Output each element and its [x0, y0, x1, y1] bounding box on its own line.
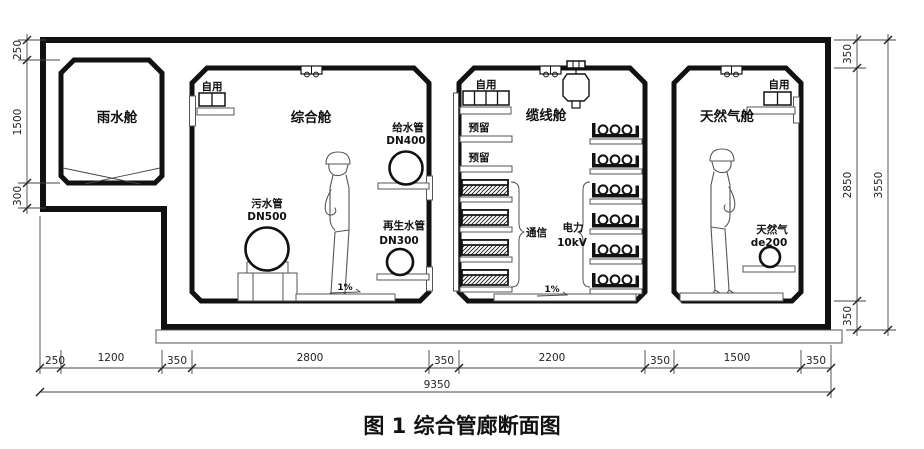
shelf [197, 108, 234, 115]
right-dimension-chain: 350 2850 350 3550 [834, 34, 896, 336]
shelf [460, 136, 512, 142]
self-use-label: 自用 [476, 78, 497, 91]
utility-floor-strip [296, 294, 395, 301]
supply-pipe-size: DN400 [386, 135, 425, 147]
utility-compartment-label: 综合舱 [291, 109, 332, 126]
slope-label: 1% [544, 285, 559, 295]
power-voltage-label: 10kV [557, 237, 588, 249]
reclaimed-pipe-circle [387, 249, 413, 275]
drawing-page: 雨水舱 自用 综合舱 给水管 DN400 污水管 DN500 再生水管 DN30… [0, 0, 924, 449]
gas-pipe-size: de200 [751, 237, 788, 249]
power-label: 电力 [563, 221, 584, 234]
pipe-pedestal [238, 273, 297, 301]
figure-title: 图 1 综合管廊断面图 [363, 414, 560, 438]
cable-compartment-label: 缆线舱 [526, 107, 567, 124]
reserved-label: 预留 [469, 151, 490, 164]
telecom-cable-tray [460, 210, 512, 232]
sewage-pipe-name: 污水管 [251, 197, 283, 210]
dim-bottom-2: 350 [167, 355, 187, 367]
telecom-cable-tray [460, 180, 512, 202]
shelf [460, 166, 512, 172]
self-use-label: 自用 [202, 80, 223, 93]
gas-pipe-name: 天然气 [756, 223, 788, 236]
self-use-label: 自用 [769, 78, 790, 91]
dim-right-top: 350 [842, 44, 854, 64]
shelf [460, 107, 511, 114]
slope-label: 1% [337, 283, 352, 293]
dim-right-middle: 2850 [842, 172, 854, 199]
gas-pipe-circle [760, 247, 780, 267]
dim-right-total: 3550 [873, 172, 885, 199]
dim-bottom-0: 250 [45, 355, 65, 367]
cable-wall-channel [454, 93, 459, 291]
dim-bottom-3: 2800 [297, 352, 324, 364]
dim-bottom-6: 350 [650, 355, 670, 367]
gas-floor-strip [680, 293, 783, 301]
tunnel-cross-section-drawing: 雨水舱 自用 综合舱 给水管 DN400 污水管 DN500 再生水管 DN30… [0, 0, 924, 449]
telecom-cable-tray [460, 270, 512, 292]
shelf [747, 107, 795, 114]
dim-left-bottom: 300 [12, 186, 24, 206]
telecom-label: 通信 [526, 226, 547, 239]
telecom-cable-tray [460, 240, 512, 262]
dim-bottom-7: 1500 [724, 352, 751, 364]
footing-slab [156, 330, 842, 343]
reserved-label: 预留 [469, 121, 490, 134]
rain-compartment-label: 雨水舱 [97, 109, 138, 126]
dim-bottom-1: 1200 [98, 352, 125, 364]
dim-right-bottom: 350 [842, 306, 854, 326]
dim-bottom-total: 9350 [424, 379, 451, 391]
reclaimed-pipe-name: 再生水管 [383, 219, 425, 232]
supply-pipe-name: 给水管 [392, 121, 424, 134]
reclaimed-pipe-size: DN300 [379, 235, 418, 247]
dim-bottom-8: 350 [806, 355, 826, 367]
left-dimension-chain: 250 1500 300 [12, 34, 60, 214]
dim-bottom-4: 350 [434, 355, 454, 367]
dim-left-top: 250 [12, 40, 24, 60]
dim-bottom-5: 2200 [539, 352, 566, 364]
dim-left-middle: 1500 [12, 109, 24, 136]
gas-compartment-label: 天然气舱 [700, 108, 754, 125]
sewage-pipe-size: DN500 [247, 211, 286, 223]
sewage-pipe-circle [246, 228, 289, 271]
wall-bracket [190, 96, 196, 126]
supply-pipe-circle [390, 152, 423, 185]
